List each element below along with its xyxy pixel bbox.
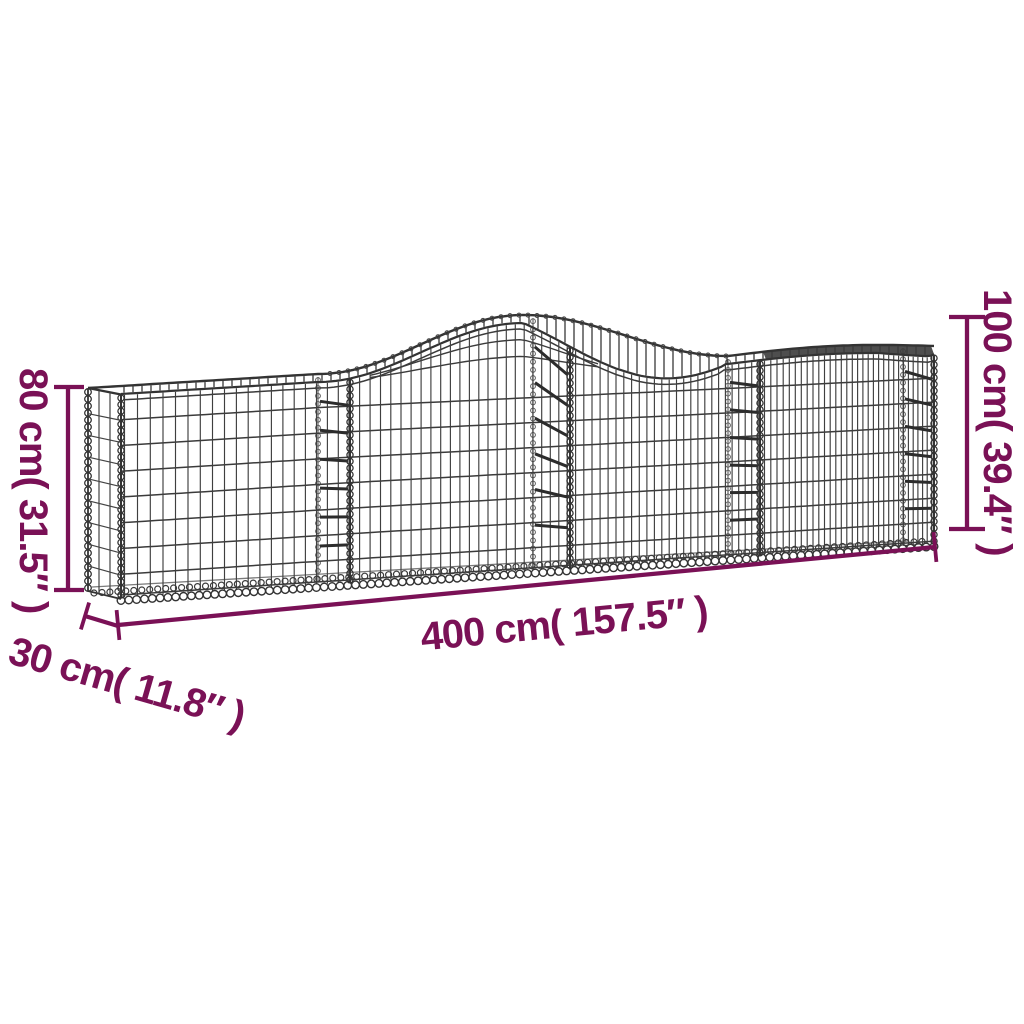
gabion-diagram xyxy=(0,0,1024,1024)
product-dimension-diagram: 80 cm( 31.5″ ) 100 cm( 39.4″ ) 400 cm( 1… xyxy=(0,0,1024,1024)
dimension-lines xyxy=(54,317,985,640)
end-height-label: 80 cm( 31.5″ ) xyxy=(11,368,55,613)
gabion-divider-rungs xyxy=(320,347,932,546)
gabion-vertical-wires xyxy=(125,324,932,597)
arch-height-label: 100 cm( 39.4″ ) xyxy=(975,289,1019,556)
gabion-left-end-face xyxy=(85,388,121,599)
